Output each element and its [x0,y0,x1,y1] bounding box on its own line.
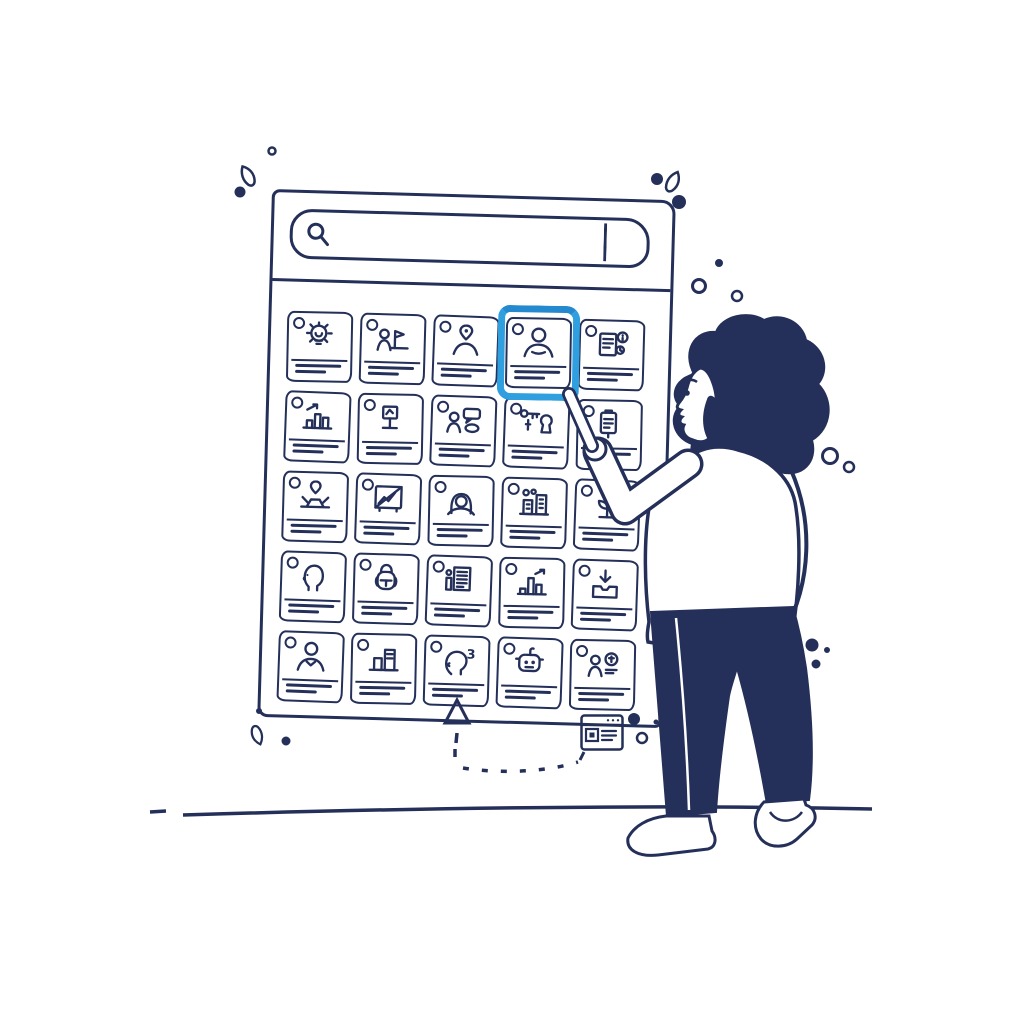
right-shoe-strap [770,812,802,821]
card-robot-face[interactable] [495,636,563,709]
card-person-location-pin[interactable] [431,314,500,387]
card-document-info[interactable] [578,319,646,392]
card-plant-sprout[interactable] [573,478,642,551]
card-text-lines [503,605,559,624]
card-text-lines [581,447,637,466]
card-person-presenting-chart[interactable] [359,313,427,386]
card-report-document[interactable] [425,554,494,627]
trousers [651,607,812,816]
card-text-lines [436,362,493,382]
robot-face-icon [507,646,552,679]
podium-stand-icon [368,402,413,435]
dashed-trail [463,762,578,771]
dashed-drop [455,733,457,757]
right-shoe [755,799,815,846]
person-location-pin-icon [443,324,488,358]
dot-decoration [806,639,818,651]
dot-decoration [812,660,820,668]
leaf-icon [664,170,683,194]
person-laptop-pin-icon [293,480,338,513]
card-text-lines [288,438,345,458]
ring-decoration [823,449,838,464]
card-block-chart[interactable] [350,633,417,705]
torso [645,447,799,648]
dot-decoration [235,187,245,197]
card-text-lines [355,681,411,700]
card-text-lines [282,678,339,698]
card-person-bust[interactable] [276,630,345,703]
card-person-portrait-selected[interactable] [505,317,572,389]
report-document-icon [437,564,482,598]
bar-chart-arrow-icon [295,400,340,434]
left-shoe [628,816,715,855]
card-backpack[interactable] [352,552,420,625]
man-profile-icon [291,560,336,593]
card-text-lines [576,607,633,627]
person-coin-icon [580,648,625,681]
head-with-number-icon: 3 [434,644,479,677]
card-person-coin[interactable] [569,639,636,711]
hair-wisp [704,396,722,448]
card-podium-stand[interactable] [357,393,424,465]
card-text-lines [286,519,342,539]
card-text-lines [574,687,630,706]
dot-decoration [282,737,290,745]
card-text-lines [362,441,418,460]
ground-line [150,807,872,815]
card-text-lines [432,523,488,542]
ring-decoration [732,291,742,301]
face [677,368,717,442]
dot-decoration [825,648,830,653]
card-text-lines [364,361,420,381]
block-chart-icon [362,642,407,675]
card-text-lines [434,443,491,463]
card-text-lines [430,602,487,622]
leaf-icon [238,164,258,188]
card-growth-chart[interactable] [498,557,565,629]
card-clipboard-notes[interactable] [576,399,643,471]
person-bust-icon [288,639,333,673]
ring-decoration [269,148,276,155]
person-portrait-icon [516,326,561,359]
card-text-lines [501,684,558,704]
card-woman-portrait[interactable] [427,475,494,547]
person-presenting-chart-icon [370,322,415,355]
download-box-icon [583,568,628,601]
eye [685,391,690,396]
card-text-lines [284,598,341,618]
cardigan-line [784,470,806,632]
browser-window: 3 [257,189,676,728]
city-buildings-icon [512,486,557,519]
window-header [272,192,672,292]
woman-portrait-icon [439,484,484,517]
card-text-lines [505,525,561,545]
card-text-lines [359,520,416,540]
card-person-laptop-pin[interactable] [281,470,349,543]
key-and-lock-icon [514,406,559,440]
card-key-and-lock[interactable] [502,396,571,469]
card-text-lines [507,444,564,464]
card-text-lines [428,683,484,703]
card-city-buildings[interactable] [500,477,568,550]
card-bar-chart-arrow[interactable] [283,390,352,463]
card-download-box[interactable] [571,558,639,631]
card-person-chat-bubbles[interactable] [429,394,497,467]
card-text-lines [291,359,347,378]
card-text-lines [583,367,639,387]
plant-sprout-icon [585,488,630,522]
card-text-lines [357,601,413,621]
card-text-lines [510,365,566,384]
person-chat-bubbles-icon [441,404,486,437]
leaf-icon [250,725,265,746]
dot-decoration [652,174,663,185]
trouser-seam [676,618,689,810]
clipboard-notes-icon [587,408,632,441]
card-lightbulb-idea[interactable] [286,311,353,383]
growth-chart-icon [510,566,555,599]
card-man-profile[interactable] [279,550,347,623]
magnifier-icon [304,220,333,249]
dot-decoration [673,196,686,209]
backpack-icon [364,562,409,595]
card-text-lines [578,526,635,546]
card-image-crossed-chart[interactable] [354,472,422,545]
search-button[interactable] [603,223,643,262]
search-input[interactable] [289,209,650,269]
ring-decoration [693,280,706,293]
dot-decoration [716,260,723,267]
lightbulb-idea-icon [298,320,343,353]
ring-decoration [844,462,854,472]
ring-decoration [637,733,647,743]
card-head-with-number[interactable]: 3 [423,634,491,707]
hair [674,315,829,484]
svg-text:3: 3 [466,647,475,662]
eyebrow [683,380,697,383]
illustration-stage: 3 [0,0,1024,1024]
document-info-icon [589,328,634,361]
card-grid: 3 [277,310,646,711]
image-crossed-chart-icon [366,482,411,515]
